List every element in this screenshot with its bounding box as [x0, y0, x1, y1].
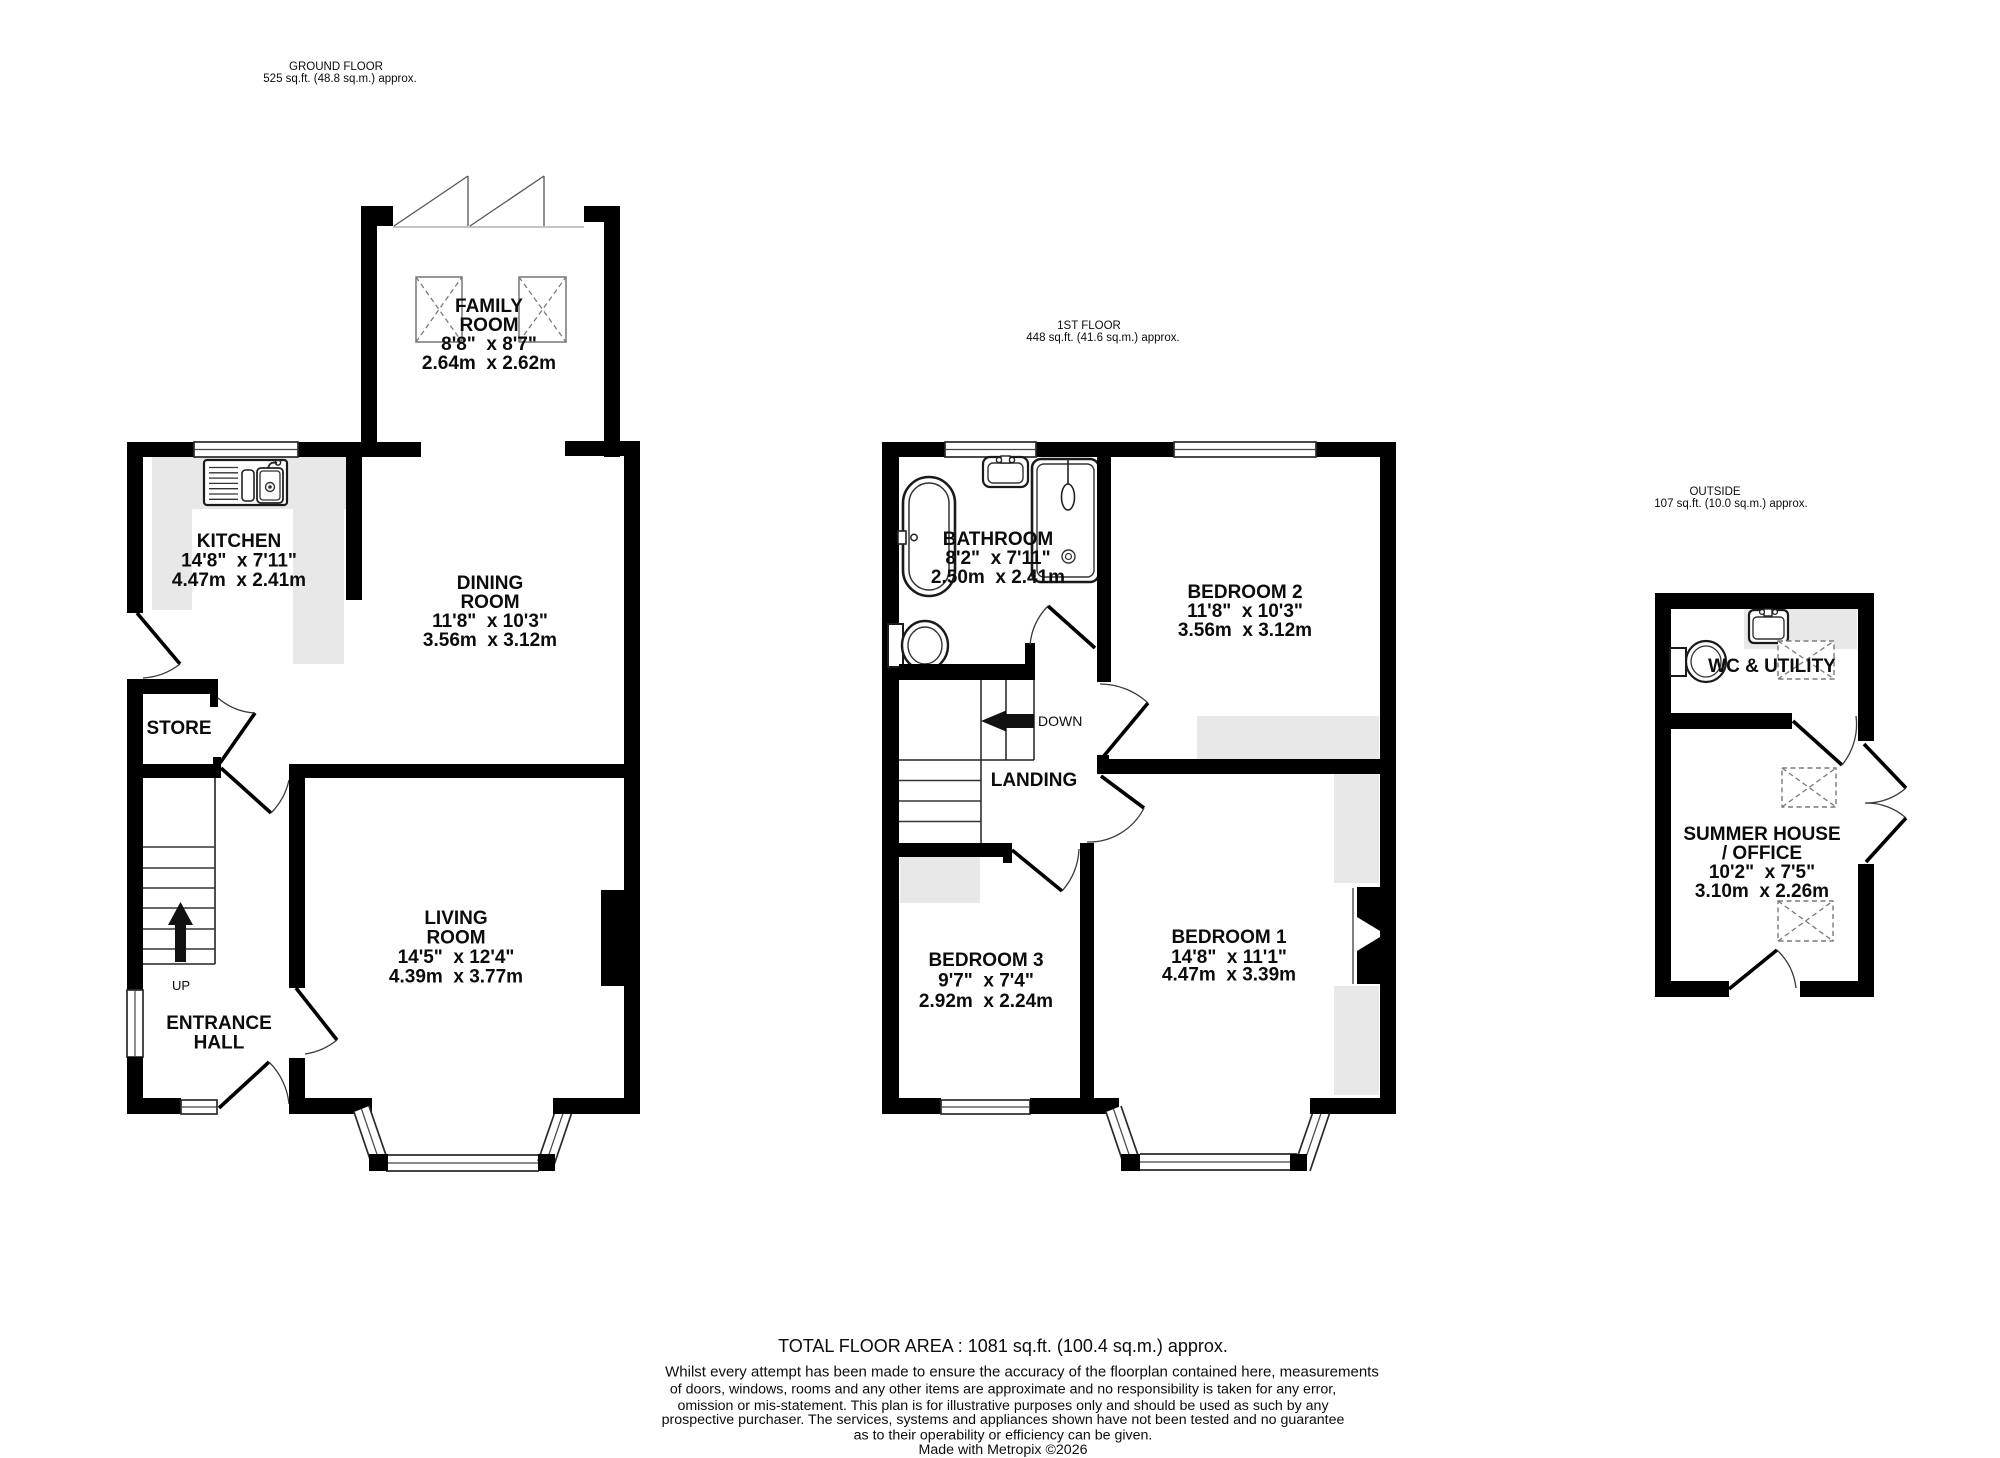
svg-text:/ OFFICE: / OFFICE	[1722, 843, 1802, 864]
svg-text:8'8" x 8'7": 8'8" x 8'7"	[441, 334, 537, 355]
svg-text:9'7" x 7'4": 9'7" x 7'4"	[938, 971, 1034, 992]
svg-text:GROUND FLOOR: GROUND FLOOR	[289, 61, 383, 73]
svg-text:2.50m x 2.41m: 2.50m x 2.41m	[931, 567, 1065, 588]
svg-text:Made with Metropix ©2026: Made with Metropix ©2026	[919, 1442, 1088, 1458]
svg-text:BEDROOM 1: BEDROOM 1	[1171, 927, 1287, 948]
svg-text:as to their operability or eff: as to their operability or efficiency ca…	[854, 1427, 1153, 1443]
svg-text:BATHROOM: BATHROOM	[943, 529, 1053, 550]
svg-text:ENTRANCE: ENTRANCE	[166, 1013, 272, 1034]
svg-text:ROOM: ROOM	[459, 315, 518, 336]
svg-text:HALL: HALL	[194, 1033, 245, 1054]
svg-text:LIVING: LIVING	[424, 908, 487, 929]
svg-text:BEDROOM 3: BEDROOM 3	[928, 950, 1043, 971]
svg-text:8'2" x 7'11": 8'2" x 7'11"	[945, 548, 1050, 569]
svg-text:BEDROOM 2: BEDROOM 2	[1187, 582, 1302, 603]
svg-text:4.39m x 3.77m: 4.39m x 3.77m	[389, 967, 523, 988]
svg-text:3.56m x 3.12m: 3.56m x 3.12m	[423, 630, 557, 651]
svg-text:ROOM: ROOM	[460, 592, 519, 613]
svg-text:11'8" x 10'3": 11'8" x 10'3"	[1187, 601, 1303, 622]
svg-text:448 sq.ft. (41.6 sq.m.) approx: 448 sq.ft. (41.6 sq.m.) approx.	[1026, 332, 1179, 344]
svg-text:10'2" x 7'5": 10'2" x 7'5"	[1709, 862, 1815, 883]
svg-text:LANDING: LANDING	[991, 770, 1078, 791]
svg-text:ROOM: ROOM	[426, 928, 485, 949]
svg-text:3.10m x 2.26m: 3.10m x 2.26m	[1695, 881, 1829, 902]
svg-text:OUTSIDE: OUTSIDE	[1689, 486, 1740, 498]
svg-text:KITCHEN: KITCHEN	[197, 531, 281, 552]
svg-text:Whilst every attempt has been: Whilst every attempt has been made to en…	[665, 1364, 1379, 1381]
svg-text:1ST FLOOR: 1ST FLOOR	[1057, 320, 1121, 332]
svg-text:107 sq.ft. (10.0 sq.m.) approx: 107 sq.ft. (10.0 sq.m.) approx.	[1654, 498, 1807, 510]
svg-text:WC & UTILITY: WC & UTILITY	[1708, 656, 1836, 677]
svg-text:2.92m x 2.24m: 2.92m x 2.24m	[919, 991, 1053, 1012]
svg-text:14'5" x 12'4": 14'5" x 12'4"	[398, 947, 515, 968]
svg-text:11'8" x 10'3": 11'8" x 10'3"	[432, 611, 548, 632]
svg-text:prospective purchaser. The ser: prospective purchaser. The services, sys…	[662, 1412, 1345, 1428]
svg-text:3.56m x 3.12m: 3.56m x 3.12m	[1178, 620, 1312, 641]
svg-text:525 sq.ft. (48.8 sq.m.) approx: 525 sq.ft. (48.8 sq.m.) approx.	[263, 73, 416, 85]
svg-text:of doors, windows, rooms and a: of doors, windows, rooms and any other i…	[670, 1382, 1336, 1398]
svg-text:SUMMER HOUSE: SUMMER HOUSE	[1683, 824, 1840, 845]
svg-text:STORE: STORE	[146, 718, 211, 739]
svg-text:DINING: DINING	[457, 573, 524, 594]
svg-text:UP: UP	[172, 978, 190, 993]
svg-text:14'8" x 7'11": 14'8" x 7'11"	[181, 551, 297, 572]
svg-text:DOWN: DOWN	[1038, 713, 1082, 729]
svg-text:TOTAL FLOOR AREA : 1081 sq.ft.: TOTAL FLOOR AREA : 1081 sq.ft. (100.4 sq…	[778, 1336, 1228, 1356]
svg-text:4.47m x 3.39m: 4.47m x 3.39m	[1162, 965, 1296, 986]
svg-text:4.47m x 2.41m: 4.47m x 2.41m	[172, 570, 306, 591]
svg-text:FAMILY: FAMILY	[455, 296, 523, 317]
svg-text:2.64m x 2.62m: 2.64m x 2.62m	[422, 353, 556, 374]
